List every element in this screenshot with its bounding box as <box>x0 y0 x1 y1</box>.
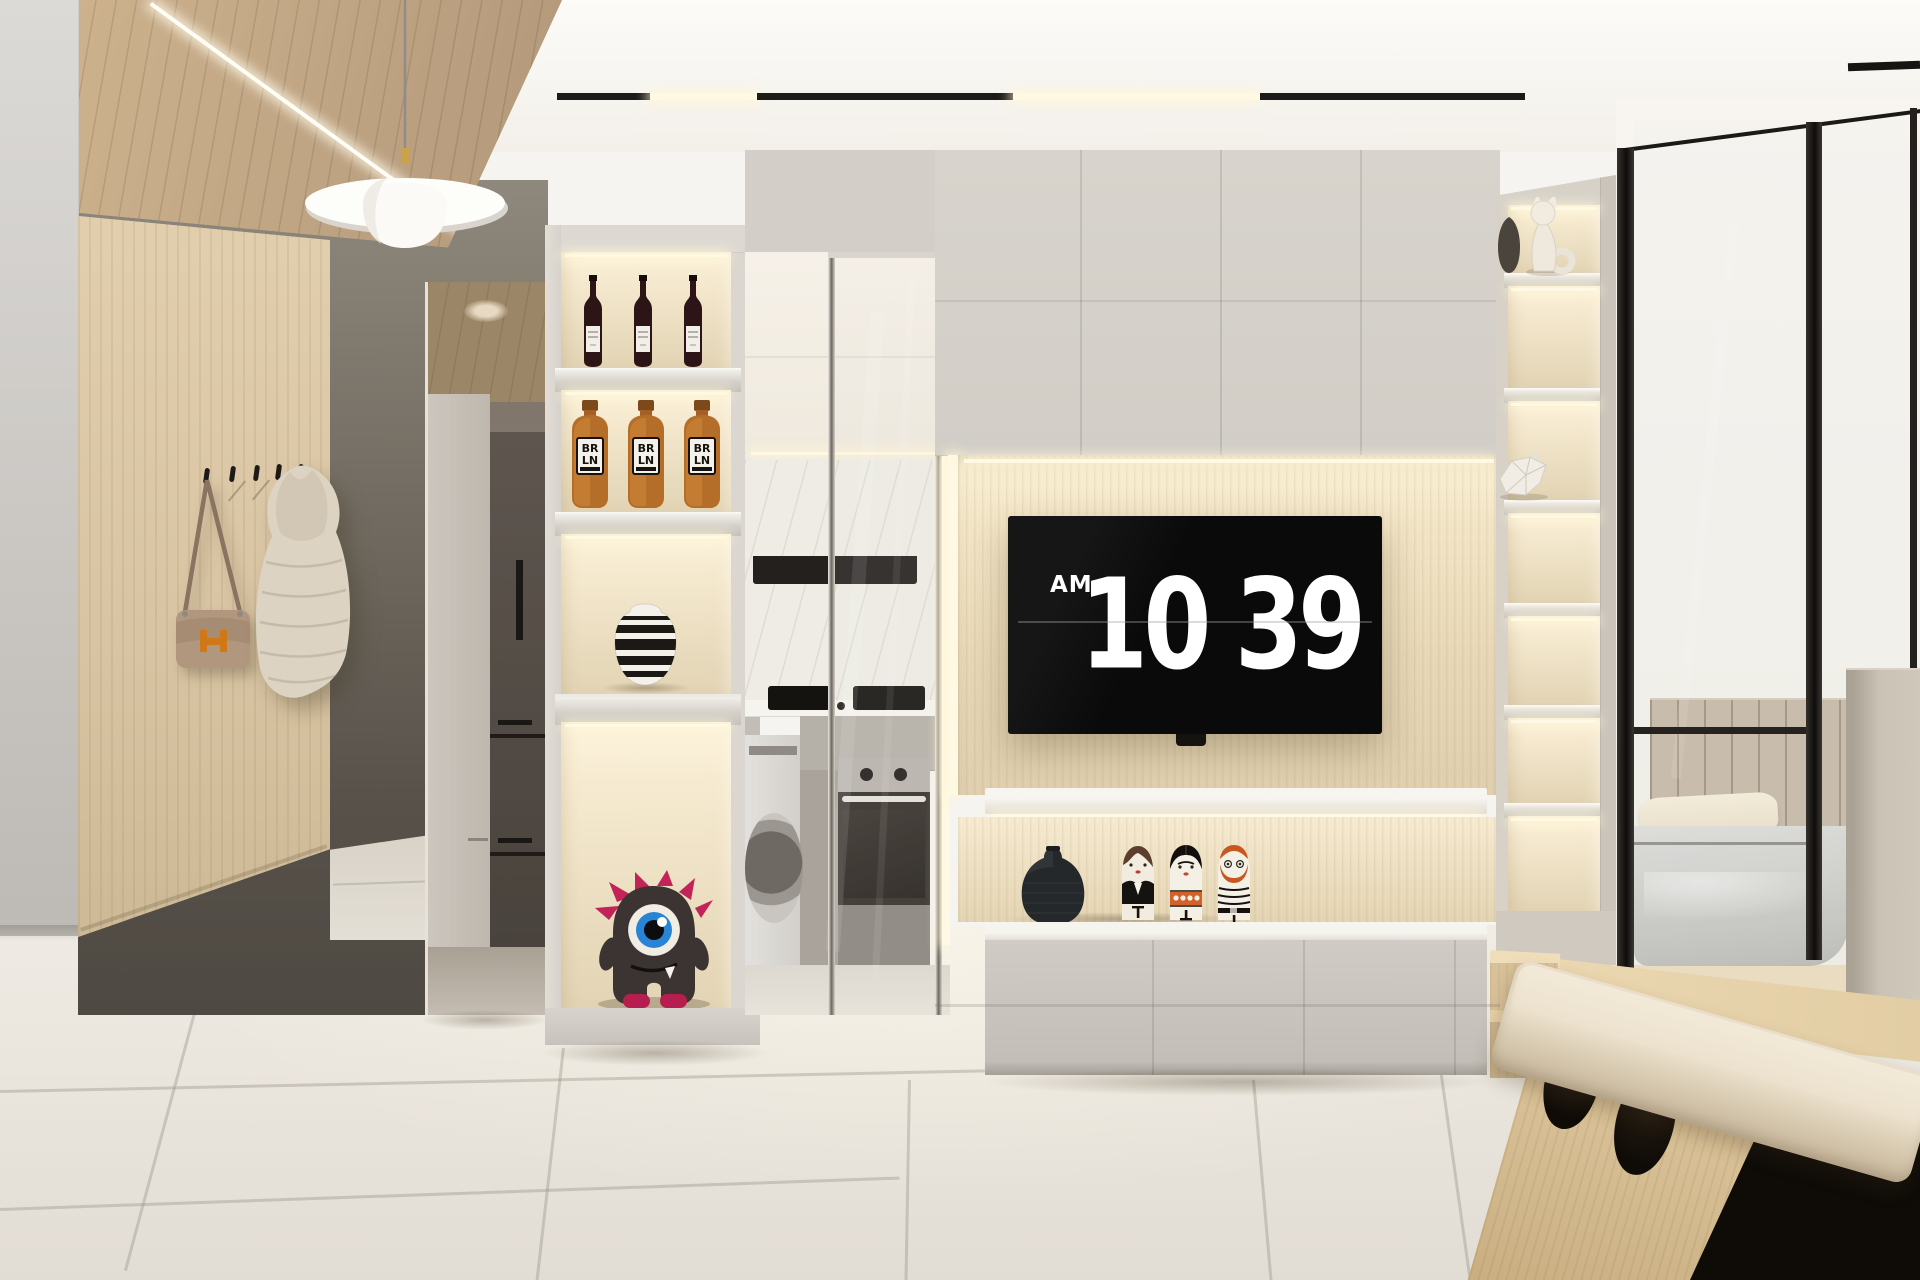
tv[interactable]: AM 10 39 <box>1008 516 1382 734</box>
display-niche <box>1508 513 1600 603</box>
wall-base-line <box>935 1004 1500 1007</box>
niche-led <box>1511 403 1597 406</box>
glass-partition-post <box>1806 122 1822 960</box>
washer-panel <box>749 746 797 755</box>
gas-cooktop <box>768 686 830 710</box>
track-segment-dark <box>757 93 1013 100</box>
faceted-animal-sculpture <box>1496 449 1554 501</box>
brln-bottles: BR LN BR LN BR <box>561 400 731 512</box>
niche-led <box>1511 720 1597 723</box>
track-segment-dark <box>557 93 650 100</box>
figurine-bearded-man <box>1218 845 1250 922</box>
floating-shelf <box>985 788 1487 814</box>
track-segment-dark <box>1260 93 1525 100</box>
niche-led <box>565 536 727 539</box>
console-cabinet <box>985 940 1487 1075</box>
mirror-base-shadow <box>420 1010 550 1030</box>
figurine-frida <box>1170 845 1202 920</box>
cabinet-seam <box>1220 150 1222 455</box>
washer-door <box>745 813 803 923</box>
glass-door <box>830 252 942 1015</box>
wine-bottles <box>571 274 721 369</box>
fleece-coat <box>228 452 378 722</box>
brln-label-line2: LN <box>638 454 654 467</box>
wine-niche <box>561 252 731 368</box>
wine-bottle <box>684 275 702 367</box>
tv-media-wall: AM 10 39 <box>935 150 1500 1075</box>
hallway-floor <box>330 835 430 940</box>
console-counter <box>985 922 1487 942</box>
cabinet-seam-h <box>935 300 1500 302</box>
display-niche <box>1508 718 1600 803</box>
niche-led <box>565 724 727 727</box>
right-display-unit <box>1496 175 1616 965</box>
upper-cabinets <box>935 150 1500 456</box>
shelf-left-stile <box>545 225 561 1045</box>
pendant-lamp <box>283 0 533 262</box>
niche-led <box>1511 818 1597 821</box>
brln-label-line2: LN <box>582 454 598 467</box>
monster-foot <box>660 994 687 1008</box>
niche-led <box>565 392 727 395</box>
display-shelf-unit: BR LN BR LN BR <box>545 225 760 1045</box>
niche-led <box>565 254 727 257</box>
ceiling-track-light <box>557 93 1525 100</box>
shelf-floor-shadow <box>540 1040 770 1066</box>
cabinet-seam <box>1454 940 1456 1075</box>
glass-partition-frame <box>1910 108 1917 670</box>
glass-door-frame <box>828 252 835 1015</box>
monster-plush <box>579 868 731 1010</box>
lamp-ferrule <box>401 148 410 163</box>
flask-niche: BR LN BR LN BR <box>561 390 731 512</box>
brln-bottle: BR LN <box>684 400 720 508</box>
cabinet-seam <box>1360 150 1362 455</box>
glass-door-frame-top <box>828 252 942 258</box>
track-segment-lit <box>650 93 757 100</box>
vase-niche <box>561 534 731 694</box>
striped-vase <box>607 596 683 692</box>
niche-led <box>1511 515 1597 518</box>
mirror-glass-tint <box>428 282 548 1015</box>
glass-partition-mid-rail <box>1634 727 1806 734</box>
brln-label-line2: LN <box>694 454 710 467</box>
tv-stand <box>1176 734 1206 746</box>
wine-bottle <box>634 275 652 367</box>
brln-bottle: BR LN <box>572 400 608 508</box>
track-segment-lit <box>1013 93 1260 100</box>
display-niche <box>1508 286 1600 388</box>
shelf-counter <box>555 694 741 725</box>
niche-led <box>964 459 1494 463</box>
glass-partition-post <box>1617 148 1634 980</box>
niche-led <box>1511 288 1597 291</box>
monster-foot <box>623 994 650 1008</box>
console-floor-shadow <box>980 1068 1495 1096</box>
black-glass-vase <box>1015 843 1091 927</box>
monster-niche <box>561 722 731 1008</box>
brln-bottle: BR LN <box>628 400 664 508</box>
kitchen <box>745 150 950 1015</box>
niche-led <box>1511 618 1597 621</box>
wine-bottle <box>584 275 602 367</box>
cat-figurine <box>1518 197 1580 277</box>
cabinet-seam <box>1303 940 1305 1075</box>
kokeshi-figurines <box>1120 840 1260 926</box>
figurine-suit-man <box>1122 846 1154 920</box>
washing-machine <box>745 735 800 965</box>
monster-eye-highlight <box>657 917 667 927</box>
left-wall-base-shadow <box>0 925 80 941</box>
unit-right-edge <box>1600 175 1617 965</box>
apartment-interior-render: BR LN BR LN BR <box>0 0 1920 1280</box>
wardrobe-column <box>1846 668 1920 1012</box>
shelf-top-band <box>545 225 760 253</box>
hall-mirror <box>425 282 550 1015</box>
tv-screen-sheen <box>1008 516 1382 734</box>
niche-left-lit-edge <box>948 455 958 795</box>
coat-hood-fold <box>276 470 328 541</box>
display-niche <box>1508 616 1600 705</box>
display-niche <box>1508 816 1600 911</box>
shelf-board <box>555 368 741 392</box>
left-wall <box>0 0 79 936</box>
shelf-board <box>555 512 741 536</box>
cabinet-seam <box>1152 940 1154 1075</box>
cabinet-seam <box>1080 150 1082 455</box>
kitchen-header-cabinet <box>745 150 950 253</box>
